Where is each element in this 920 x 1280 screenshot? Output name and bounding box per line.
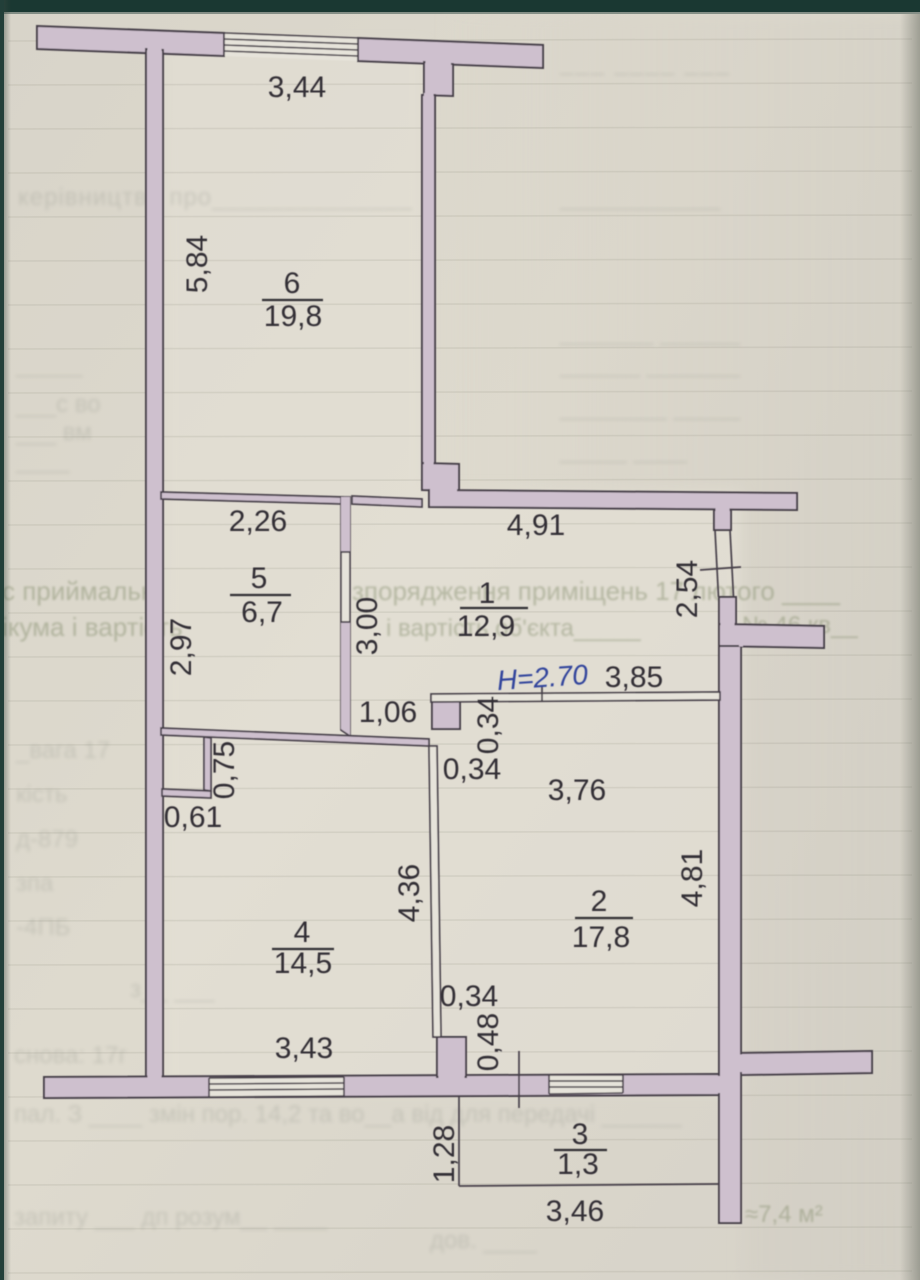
svg-text:________ _____: ________ _____ — [559, 394, 741, 421]
svg-text:д-879: д-879 — [16, 826, 78, 853]
svg-text:4,91: 4,91 — [507, 509, 565, 542]
svg-text:3: 3 — [572, 1118, 589, 1151]
svg-text:2,54: 2,54 — [671, 560, 704, 618]
svg-text:0,48: 0,48 — [472, 1013, 505, 1071]
svg-text:___с во: ___с во — [15, 391, 101, 418]
svg-text:0,34: 0,34 — [472, 696, 505, 754]
svg-text:дов. ____: дов. ____ — [430, 1227, 537, 1254]
svg-text:___ вм: ___ вм — [15, 419, 92, 446]
svg-text:19,8: 19,8 — [264, 300, 322, 333]
svg-text:_______ ______: _______ ______ — [559, 319, 741, 346]
svg-text:3,76: 3,76 — [548, 774, 606, 807]
svg-text:запиту ___ дп розум__ ____: запиту ___ дп розум__ ____ — [14, 1204, 328, 1231]
svg-text:с приймальн: с приймальн — [2, 576, 155, 606]
svg-text:2: 2 — [591, 885, 608, 918]
svg-text:0,61: 0,61 — [164, 801, 222, 834]
svg-text:Н=2.70: Н=2.70 — [496, 659, 589, 696]
svg-text:1,28: 1,28 — [428, 1125, 461, 1183]
svg-text:≈7,4 м²: ≈7,4 м² — [745, 1201, 823, 1228]
svg-text:6,7: 6,7 — [241, 596, 283, 629]
svg-text:4,36: 4,36 — [393, 864, 426, 922]
svg-text:12,9: 12,9 — [457, 610, 515, 643]
svg-text:____________: ____________ — [559, 184, 721, 211]
svg-text:_____ ____: _____ ____ — [559, 437, 687, 464]
svg-text:керівництва про______________: керівництва про______________ — [18, 184, 413, 211]
svg-text:___ ____ ___: ___ ____ ___ — [559, 49, 731, 76]
svg-text:4: 4 — [294, 916, 311, 949]
svg-text:снова: 17г: снова: 17г — [14, 1042, 127, 1069]
svg-text:3,43: 3,43 — [275, 1032, 333, 1065]
svg-text:з__ ___: з__ ___ — [130, 976, 215, 1003]
svg-text:1,06: 1,06 — [359, 696, 417, 729]
svg-text:1: 1 — [479, 577, 496, 610]
svg-text:_____: _____ — [15, 351, 83, 378]
svg-text:3,46: 3,46 — [546, 1195, 604, 1228]
svg-text:кість: кість — [16, 781, 67, 808]
svg-text:14,5: 14,5 — [274, 947, 332, 980]
svg-text:зпа: зпа — [16, 870, 54, 897]
svg-text:4,81: 4,81 — [676, 849, 709, 907]
svg-text:зпорядження приміщень 17 лютог: зпорядження приміщень 17 лютого ____ — [352, 576, 840, 606]
svg-text:____: ____ — [15, 447, 70, 474]
svg-text:2,97: 2,97 — [165, 618, 198, 676]
svg-text:_вага 17: _вага 17 — [15, 737, 110, 764]
svg-text:______ _______: ______ _______ — [559, 351, 741, 378]
svg-text:0,34: 0,34 — [443, 753, 501, 786]
svg-text:2,26: 2,26 — [229, 505, 287, 538]
svg-text:0,34: 0,34 — [440, 980, 498, 1013]
svg-text:3,44: 3,44 — [268, 71, 326, 104]
svg-text:-4ПБ: -4ПБ — [16, 914, 70, 941]
svg-text:3,00: 3,00 — [351, 597, 384, 655]
svg-text:1,3: 1,3 — [557, 1148, 599, 1181]
svg-text:5: 5 — [251, 562, 268, 595]
svg-text:5,84: 5,84 — [181, 235, 214, 293]
svg-text:6: 6 — [284, 267, 301, 300]
svg-text:17,8: 17,8 — [572, 921, 630, 954]
svg-text:0,75: 0,75 — [208, 741, 241, 799]
svg-text:3,85: 3,85 — [605, 661, 663, 694]
